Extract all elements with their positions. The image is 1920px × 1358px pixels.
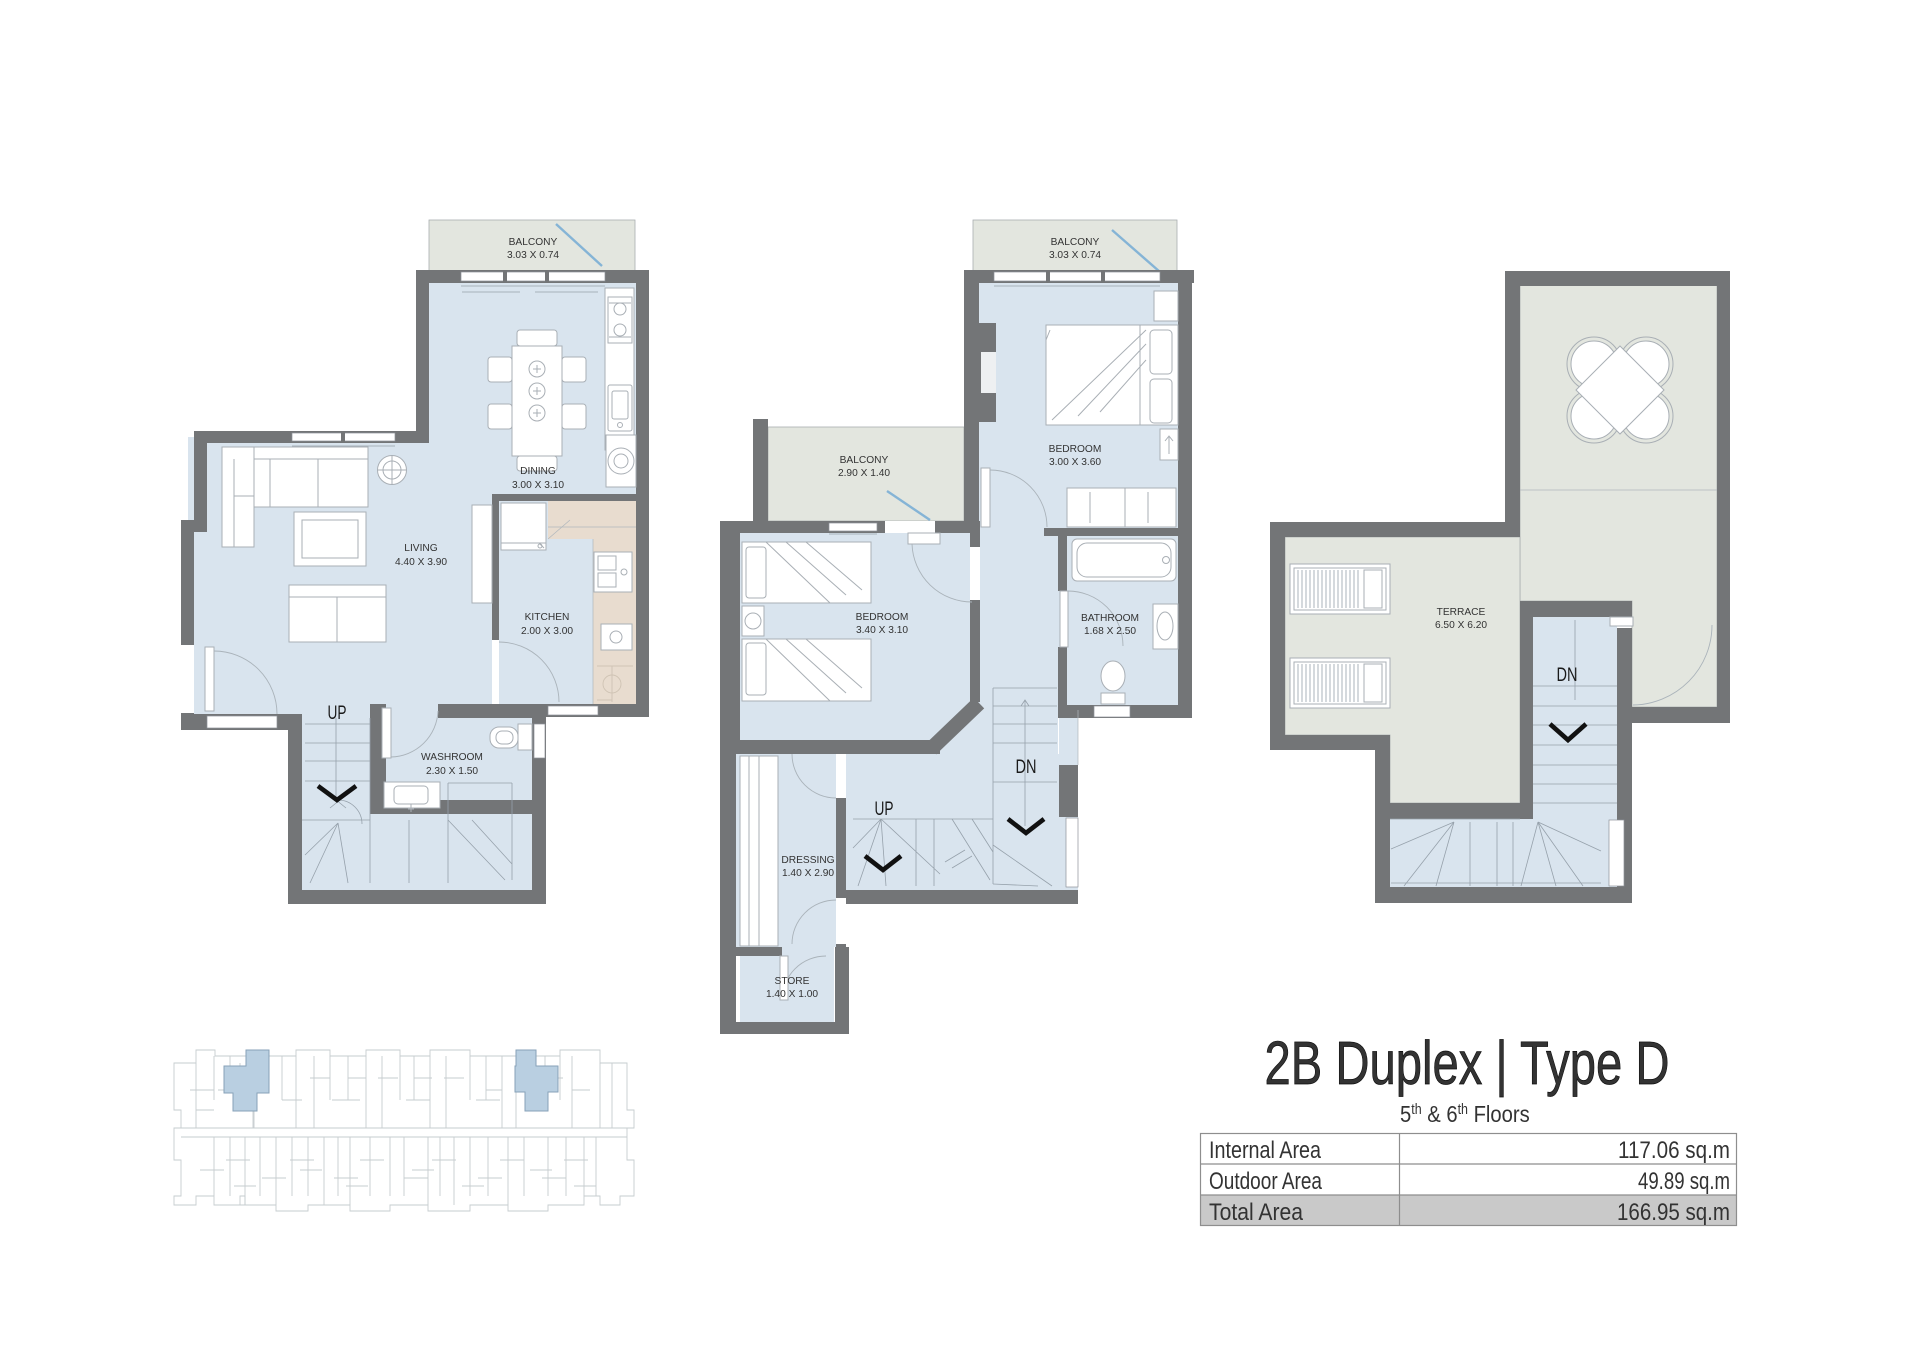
svg-text:DN: DN [1016,757,1037,778]
svg-text:3.03 X 0.74: 3.03 X 0.74 [507,250,559,261]
svg-text:1.68 X 2.50: 1.68 X 2.50 [1084,626,1136,637]
svg-text:BEDROOM: BEDROOM [856,612,909,623]
svg-text:1.40 X 1.00: 1.40 X 1.00 [766,989,818,1000]
svg-text:DRESSING: DRESSING [781,855,834,866]
svg-text:4.40 X 3.90: 4.40 X 3.90 [395,557,447,568]
svg-text:6.50 X 6.20: 6.50 X 6.20 [1435,620,1487,631]
svg-text:2B Duplex | Type D: 2B Duplex | Type D [1265,1029,1670,1097]
svg-text:WASHROOM: WASHROOM [421,752,483,763]
svg-text:49.89 sq.m: 49.89 sq.m [1638,1168,1730,1195]
svg-text:3.40 X 3.10: 3.40 X 3.10 [856,625,908,636]
svg-text:UP: UP [328,703,347,724]
svg-text:3.00 X 3.10: 3.00 X 3.10 [512,480,564,491]
svg-text:STORE: STORE [775,976,810,987]
svg-text:166.95 sq.m: 166.95 sq.m [1617,1199,1730,1226]
svg-text:2.00 X 3.00: 2.00 X 3.00 [521,626,573,637]
svg-text:Total Area: Total Area [1209,1199,1304,1226]
svg-text:TERRACE: TERRACE [1437,607,1486,618]
svg-text:Outdoor Area: Outdoor Area [1209,1168,1323,1195]
svg-text:BATHROOM: BATHROOM [1081,613,1139,624]
svg-text:2.90 X 1.40: 2.90 X 1.40 [838,468,890,479]
svg-text:UP: UP [875,799,894,820]
svg-text:DN: DN [1557,665,1578,686]
svg-text:Internal Area: Internal Area [1209,1137,1322,1164]
svg-text:3.00 X 3.60: 3.00 X 3.60 [1049,457,1101,468]
svg-text:BALCONY: BALCONY [1051,237,1100,248]
svg-text:DINING: DINING [520,466,556,477]
svg-text:BEDROOM: BEDROOM [1049,444,1102,455]
svg-text:KITCHEN: KITCHEN [525,612,570,623]
svg-text:1.40 X 2.90: 1.40 X 2.90 [782,868,834,879]
svg-text:3.03 X 0.74: 3.03 X 0.74 [1049,250,1101,261]
svg-text:BALCONY: BALCONY [840,455,889,466]
svg-text:LIVING: LIVING [404,543,437,554]
svg-text:2.30 X 1.50: 2.30 X 1.50 [426,766,478,777]
svg-text:BALCONY: BALCONY [509,237,558,248]
svg-text:117.06 sq.m: 117.06 sq.m [1618,1137,1730,1164]
